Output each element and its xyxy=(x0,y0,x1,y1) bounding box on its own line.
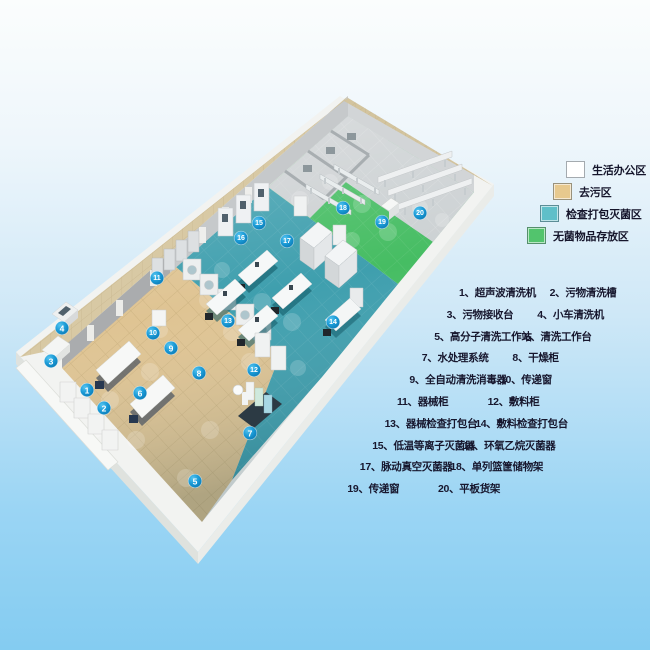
equipment-row: 13、器械检查打包台 14、敷料检查打包台 xyxy=(385,416,568,431)
plan-marker-3: 3 xyxy=(44,354,58,368)
plan-marker-16: 16 xyxy=(234,231,248,245)
equipment-item: 5、高分子清洗工作站 xyxy=(434,329,522,344)
svg-text:4: 4 xyxy=(60,324,65,334)
equipment-item: 2、污物清洗槽 xyxy=(550,285,617,300)
plan-marker-19: 19 xyxy=(375,215,389,229)
transfer-window-10 xyxy=(152,310,166,326)
svg-text:15: 15 xyxy=(255,220,263,227)
equipment-item: 8、干燥柜 xyxy=(512,350,558,365)
plan-marker-8: 8 xyxy=(192,366,206,380)
equipment-item: 7、水处理系统 xyxy=(422,350,510,365)
plan-marker-6: 6 xyxy=(133,386,147,400)
svg-text:9: 9 xyxy=(169,344,174,354)
svg-text:2: 2 xyxy=(102,404,107,414)
svg-text:17: 17 xyxy=(283,238,291,245)
equipment-item: 14、敷料检查打包台 xyxy=(475,416,568,431)
svg-text:6: 6 xyxy=(138,389,143,399)
svg-text:18: 18 xyxy=(339,205,347,212)
svg-text:20: 20 xyxy=(416,210,424,217)
plan-marker-4: 4 xyxy=(55,321,69,335)
equipment-item: 9、全自动清洗消毒器 xyxy=(409,372,497,387)
plan-marker-15: 15 xyxy=(252,216,266,230)
legend-item-packing: 检查打包灭菌区 xyxy=(540,205,642,222)
cssd-floorplan-page: 1234567891011121314151617181920 生活办公区 去污… xyxy=(0,0,650,650)
equipment-row: 19、传递窗 20、平板货架 xyxy=(347,481,500,496)
plan-marker-7: 7 xyxy=(243,426,257,440)
plan-marker-9: 9 xyxy=(164,341,178,355)
plan-marker-14: 14 xyxy=(326,315,340,329)
svg-text:8: 8 xyxy=(197,369,202,379)
legend-swatch-packing xyxy=(540,205,559,222)
legend-label: 生活办公区 xyxy=(592,162,646,178)
equipment-item: 11、器械柜 xyxy=(397,394,485,409)
svg-text:5: 5 xyxy=(193,477,198,487)
equipment-row: 9、全自动清洗消毒器 10、传递窗 xyxy=(409,372,552,387)
svg-text:19: 19 xyxy=(378,219,386,226)
plan-marker-17: 17 xyxy=(280,234,294,248)
equipment-row: 7、水处理系统 8、干燥柜 xyxy=(422,350,559,365)
equipment-item: 1、超声波清洗机 xyxy=(459,285,547,300)
floor-plan: 1234567891011121314151617181920 xyxy=(0,0,650,650)
equipment-row: 11、器械柜 12、敷料柜 xyxy=(397,394,540,409)
equipment-row: 17、脉动真空灭菌器 18、单列篮筐储物架 xyxy=(360,459,543,474)
equipment-item: 3、污物接收台 xyxy=(447,307,535,322)
equipment-item: 4、小车清洗机 xyxy=(537,307,604,322)
svg-text:10: 10 xyxy=(149,330,157,337)
svg-text:16: 16 xyxy=(237,235,245,242)
svg-text:1: 1 xyxy=(85,386,90,396)
svg-text:13: 13 xyxy=(224,318,232,325)
plan-marker-13: 13 xyxy=(221,314,235,328)
equipment-item: 20、平板货架 xyxy=(438,481,500,496)
legend-item-office: 生活办公区 xyxy=(566,161,646,178)
equipment-item: 10、传递窗 xyxy=(500,372,552,387)
equipment-row: 5、高分子清洗工作站 6、清洗工作台 xyxy=(434,329,591,344)
legend-swatch-sterile xyxy=(527,227,546,244)
plan-marker-1: 1 xyxy=(80,383,94,397)
svg-text:7: 7 xyxy=(248,429,253,439)
equipment-item: 13、器械检查打包台 xyxy=(385,416,473,431)
svg-text:11: 11 xyxy=(153,275,161,282)
equipment-item: 15、低温等离子灭菌器 xyxy=(372,438,460,453)
svg-text:14: 14 xyxy=(329,319,337,326)
equipment-item: 19、传递窗 xyxy=(347,481,435,496)
legend-label: 去污区 xyxy=(579,184,611,200)
plan-marker-2: 2 xyxy=(97,401,111,415)
svg-text:12: 12 xyxy=(250,367,258,374)
equipment-item: 18、单列篮筐储物架 xyxy=(450,459,543,474)
equipment-item: 12、敷料柜 xyxy=(488,394,540,409)
equipment-row: 3、污物接收台 4、小车清洗机 xyxy=(447,307,604,322)
plan-marker-12: 12 xyxy=(247,363,261,377)
plan-marker-5: 5 xyxy=(188,474,202,488)
legend-item-decontamination: 去污区 xyxy=(553,183,611,200)
plan-marker-20: 20 xyxy=(413,206,427,220)
legend-label: 检查打包灭菌区 xyxy=(566,206,642,222)
svg-text:3: 3 xyxy=(49,357,54,367)
plan-marker-10: 10 xyxy=(146,326,160,340)
legend-swatch-decontamination xyxy=(553,183,572,200)
equipment-item: 17、脉动真空灭菌器 xyxy=(360,459,448,474)
equipment-item: 16、环氧乙烷灭菌器 xyxy=(463,438,556,453)
equipment-row: 1、超声波清洗机 2、污物清洗槽 xyxy=(459,285,616,300)
equipment-item: 6、清洗工作台 xyxy=(525,329,592,344)
legend-label: 无菌物品存放区 xyxy=(553,228,629,244)
plan-marker-18: 18 xyxy=(336,201,350,215)
plan-marker-11: 11 xyxy=(150,271,164,285)
legend-swatch-office xyxy=(566,161,585,178)
equipment-row: 15、低温等离子灭菌器 16、环氧乙烷灭菌器 xyxy=(372,438,555,453)
legend-item-sterile: 无菌物品存放区 xyxy=(527,227,629,244)
